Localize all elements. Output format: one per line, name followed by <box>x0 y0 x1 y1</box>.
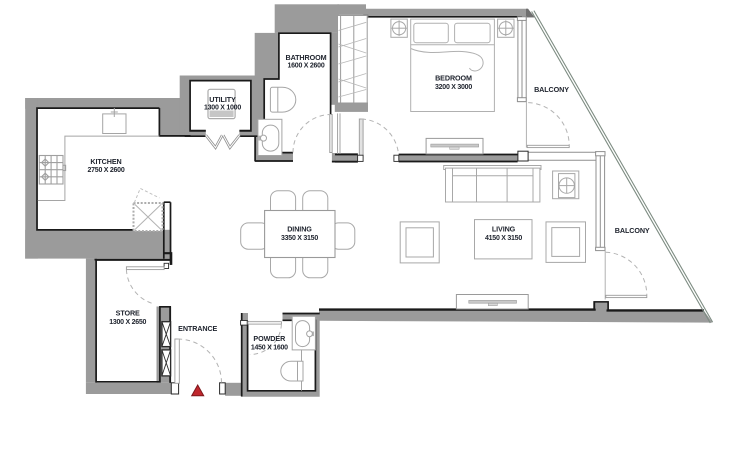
svg-text:UTILITY: UTILITY <box>209 95 236 104</box>
svg-text:BALCONY: BALCONY <box>534 85 569 94</box>
svg-text:BEDROOM: BEDROOM <box>435 73 472 82</box>
svg-text:1300 X 2650: 1300 X 2650 <box>109 319 146 326</box>
svg-text:2750 X 2600: 2750 X 2600 <box>88 167 125 174</box>
svg-text:1450 X 1600: 1450 X 1600 <box>251 344 288 351</box>
svg-text:POWDER: POWDER <box>253 334 286 343</box>
svg-text:KITCHEN: KITCHEN <box>90 157 121 166</box>
svg-text:1300 X 1000: 1300 X 1000 <box>204 104 241 111</box>
svg-text:4150 X 3150: 4150 X 3150 <box>485 235 522 242</box>
svg-text:BALCONY: BALCONY <box>615 226 650 235</box>
svg-text:1600 X 2600: 1600 X 2600 <box>288 63 325 70</box>
svg-text:3200 X 3000: 3200 X 3000 <box>435 84 472 91</box>
svg-text:DINING: DINING <box>287 225 312 234</box>
svg-text:3350 X 3150: 3350 X 3150 <box>281 235 318 242</box>
svg-text:BATHROOM: BATHROOM <box>286 53 327 62</box>
svg-text:STORE: STORE <box>116 309 140 318</box>
svg-text:LIVING: LIVING <box>492 225 516 234</box>
svg-text:ENTRANCE: ENTRANCE <box>178 324 217 333</box>
